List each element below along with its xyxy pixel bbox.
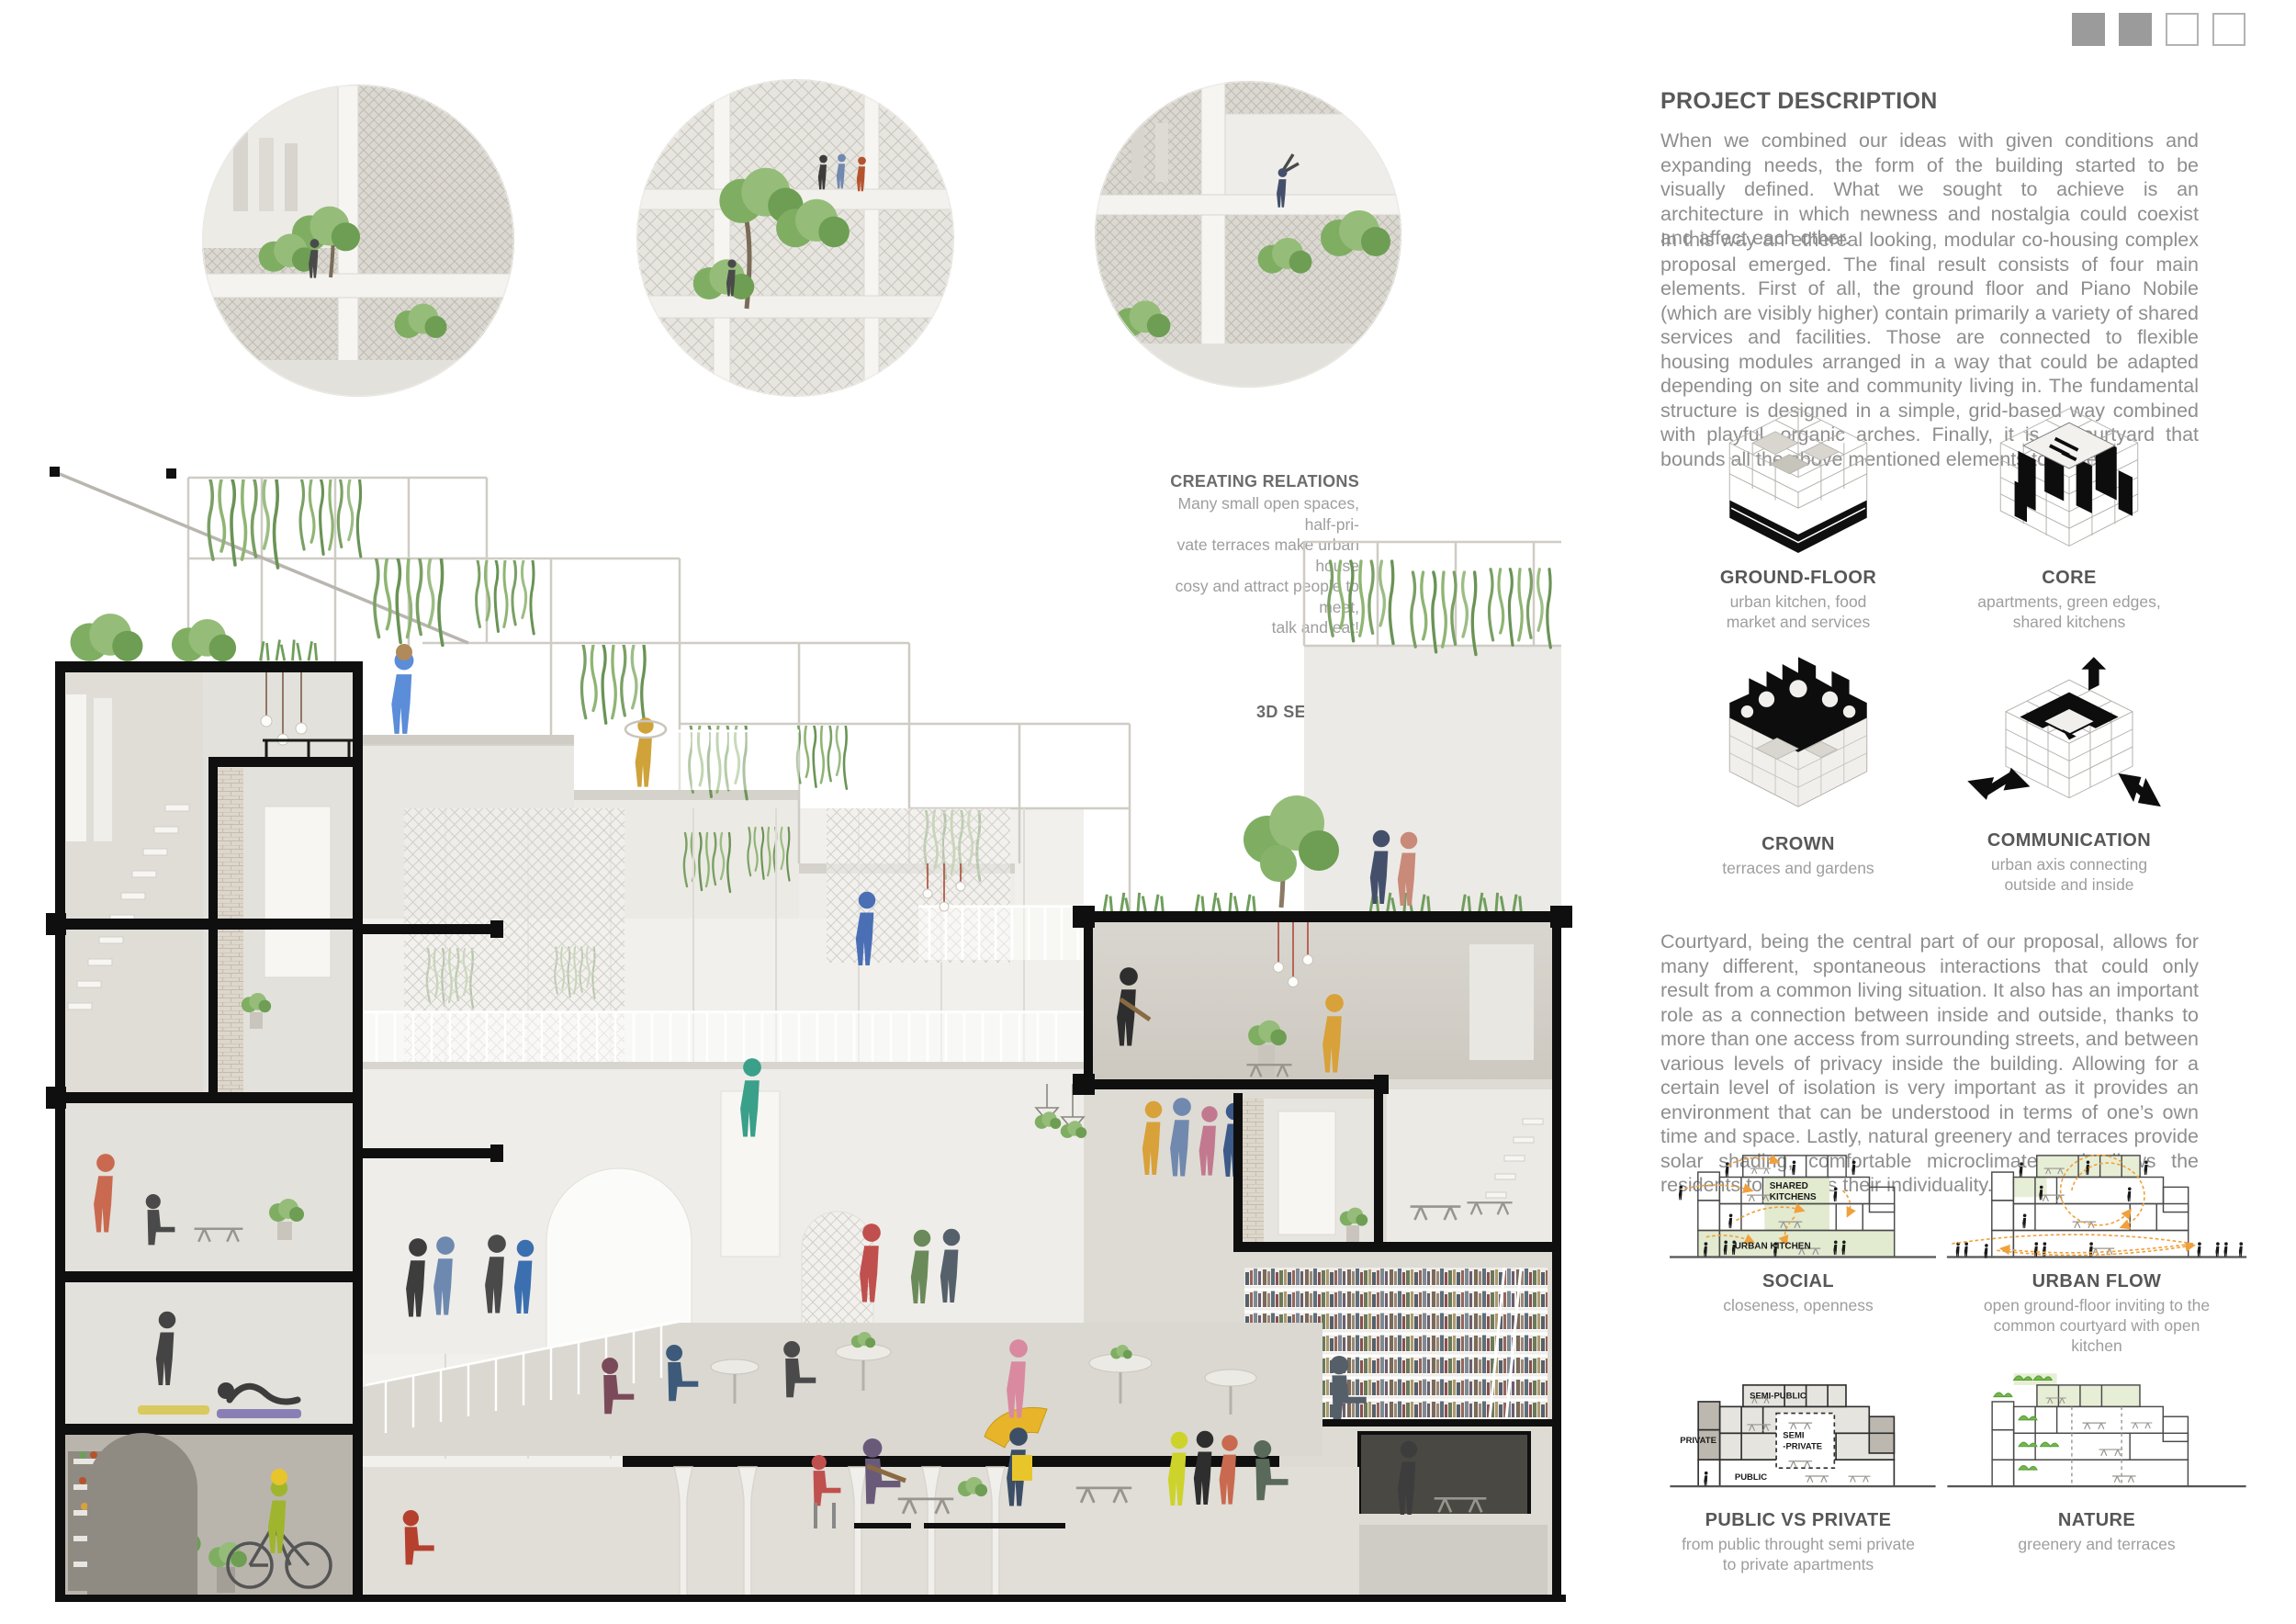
diagram-title: PUBLIC VS PRIVATE [1660,1510,1936,1531]
diagram-social: SHARED KITCHENS URBAN KITCHEN [1670,1137,1936,1270]
label-nature: NATURE greenery and terraces [1959,1510,2234,1554]
project-description-title: PROJECT DESCRIPTION [1660,88,2202,115]
hero-circle-2 [636,79,954,397]
diagram-title: GROUND-FLOOR [1660,568,1936,589]
diagram-caption: from public throught semi private to pri… [1660,1534,1936,1574]
label-shared: SHARED [1770,1181,1808,1191]
hero-circle-3 [1095,81,1401,388]
label-urban-kitchen: URBAN KITCHEN [1735,1241,1811,1251]
label-social: SOCIAL closeness, openness [1660,1271,1936,1315]
label-crown: CROWN terraces and gardens [1660,834,1936,878]
hero-circle-1 [202,85,514,397]
diagram-core [1964,395,2175,565]
diagram-title: NATURE [1959,1510,2234,1531]
diagram-communication [1964,652,2175,822]
presentation-board: { "page_indicator": {"squares": ["filled… [0,0,2296,1624]
label-semi-public: SEMI-PUBLIC [1750,1391,1806,1401]
diagram-caption: apartments, green edges, shared kitchens [1931,592,2207,632]
diagram-ground-floor [1693,395,1904,565]
diagram-caption: urban axis connecting outside and inside [1931,854,2207,895]
diagram-nature [1945,1367,2248,1505]
diagram-title: URBAN FLOW [1959,1271,2234,1292]
page-square-2[interactable] [2119,13,2152,46]
diagram-caption: greenery and terraces [1959,1534,2234,1554]
diagram-caption: urban kitchen, food market and services [1660,592,1936,632]
diagram-title: CROWN [1660,834,1936,855]
diagram-title: COMMUNICATION [1931,830,2207,851]
label-communication: COMMUNICATION urban axis connecting outs… [1931,830,2207,895]
label-semi: SEMI [1783,1431,1804,1441]
label-urban-flow: URBAN FLOW open ground-floor inviting to… [1959,1271,2234,1356]
label-ground-floor: GROUND-FLOOR urban kitchen, food market … [1660,568,1936,632]
mid-railing [363,1010,1084,1069]
diagram-public-private: SEMI-PUBLIC PRIVATE SEMI -PRIVATE PUBLIC [1670,1367,1936,1505]
label-kitchens: KITCHENS [1770,1192,1817,1202]
page-square-1[interactable] [2072,13,2105,46]
diagram-caption: closeness, openness [1660,1295,1936,1315]
diagram-title: CORE [1931,568,2207,589]
diagram-caption: terraces and gardens [1660,858,1936,878]
diagram-crown [1693,652,1904,822]
page-square-4[interactable] [2212,13,2245,46]
page-indicator [2072,13,2245,46]
label-private: PRIVATE [1680,1436,1716,1446]
page-square-3[interactable] [2166,13,2199,46]
label-public-private: PUBLIC VS PRIVATE from public throught s… [1660,1510,1936,1574]
label-semi-private: -PRIVATE [1783,1441,1822,1451]
label-public: PUBLIC [1735,1472,1767,1483]
label-core: CORE apartments, green edges, shared kit… [1931,568,2207,632]
building-3d-section [37,448,1589,1617]
diagram-title: SOCIAL [1660,1271,1936,1292]
diagram-urban-flow [1945,1137,2248,1270]
diagram-caption: open ground-floor inviting to the common… [1959,1295,2234,1356]
